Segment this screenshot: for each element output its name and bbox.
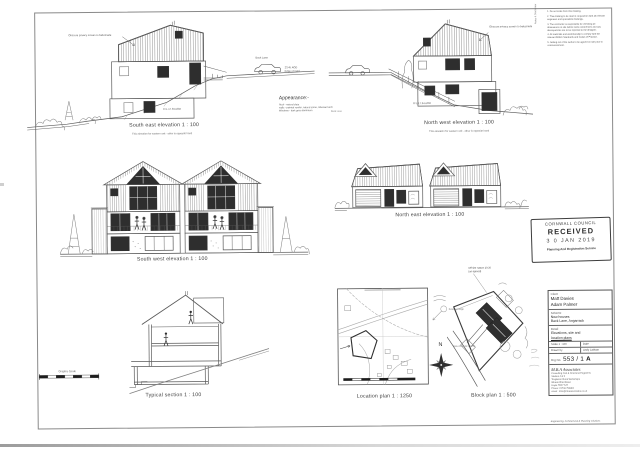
road-edge-note: Edge of road <box>285 69 300 73</box>
typical-section-label: Typical section 1 : 100 <box>145 392 201 398</box>
tree-icons-right <box>503 106 528 115</box>
council-received-stamp: CORNWALL COUNCIL RECEIVED 3 0 JAN 2019 P… <box>530 217 611 263</box>
ne-ground <box>335 207 529 211</box>
compass-north-label: N <box>439 342 443 348</box>
section-linework <box>129 291 225 388</box>
ne-house-left <box>351 163 422 208</box>
scheme-line: Back Lane, Angarrack <box>551 319 610 324</box>
client-cell: Client Matt Davies Adam Palmer <box>549 290 612 309</box>
grid-cross <box>338 288 429 385</box>
title-block-footer: Engineering, Architectural & Planning so… <box>551 419 615 423</box>
graphic-scale: Graphic Scale <box>37 366 121 391</box>
stamp-service: Planning And Registration Service <box>532 246 610 252</box>
south-east-elevation-sublabel: This elevation for western unit - other … <box>132 132 192 136</box>
sw-house-right <box>181 161 261 254</box>
north-west-elevation-label: North west elevation 1 : 100 <box>424 119 494 126</box>
ffl-note: FFL 17.94 AOD <box>163 107 181 111</box>
south-west-elevation-label: South west elevation 1 : 100 <box>137 256 208 263</box>
notes-side-label: Notes & Disclaimer <box>534 4 537 24</box>
ne-house-right <box>429 162 500 207</box>
north-east-elevation-drawing <box>332 148 533 222</box>
sheet-tilt-wrapper: Obscure privacy screen to balustrade FFL… <box>0 0 640 453</box>
drg-revision: A <box>586 355 591 362</box>
sw-house-left <box>103 161 183 254</box>
car-icon <box>255 64 281 74</box>
site-boundary <box>454 291 524 371</box>
block-plan-label: Block plan 1 : 500 <box>471 392 516 398</box>
location-plan-drawing <box>337 285 430 392</box>
appearance-note: Appearance:- Roof - natural slate walls … <box>279 95 365 113</box>
stamp-received: RECEIVED <box>532 225 610 236</box>
drawn-by: Andy Latham <box>580 348 612 353</box>
driveway <box>460 325 487 354</box>
pencil-marks <box>529 349 539 366</box>
site-arrow <box>340 345 350 348</box>
firm-cell: M.B.A Associates Consulting Civil & Stru… <box>549 365 612 395</box>
location-plan-label: Location plan 1 : 1250 <box>357 393 413 399</box>
appearance-title: Appearance:- <box>279 95 365 102</box>
typical-section-drawing <box>128 282 269 403</box>
sketch-scribble <box>433 295 447 320</box>
south-east-elevation-label: South east elevation 1 : 100 <box>129 122 199 129</box>
vegetation <box>499 283 528 359</box>
note-item: 5. Setting out of the works to be agreed… <box>547 42 606 48</box>
block-plan-drawing: Off site nature 20:20 (as agreed) Existi… <box>446 262 547 391</box>
scheme-cell: Scheme New houses Back Lane, Angarrack <box>549 309 612 326</box>
north-east-elevation-label: North east elevation 1 : 100 <box>395 212 464 219</box>
plan-scale-bar <box>343 378 415 381</box>
note-item: 1. Do not scale from this drawing. <box>547 10 606 13</box>
road-level-note: 23.45 AOD <box>285 65 298 69</box>
drg-label: Drg No. <box>551 358 561 362</box>
offsite-note-2: (as agreed) <box>468 270 481 273</box>
note-item: 2. This drawing to be read in conjunctio… <box>547 15 606 21</box>
drawing-number-cell: Drg No. 553 / 1 A <box>549 354 612 366</box>
sw-ground-walls <box>60 206 308 257</box>
note-item: 3. The contractor is responsible for che… <box>547 23 606 32</box>
privacy-screen-note: Obscure privacy screen to balustrade <box>489 24 533 28</box>
patio-outline <box>496 290 513 307</box>
north-west-elevation-sublabel: This elevation for western unit - other … <box>429 130 489 134</box>
firm-line: email : mba@mbaassociates.co.uk <box>551 390 610 393</box>
car-icon <box>346 66 370 76</box>
note-leader <box>473 274 486 293</box>
detail-line: location plans <box>551 335 610 340</box>
title-block: Client Matt Davies Adam Palmer Scheme Ne… <box>548 289 614 396</box>
privacy-screen-note: Obscure privacy screen to balustrade <box>68 33 112 37</box>
graphic-scale-label: Graphic Scale <box>58 369 76 373</box>
stamp-date: 3 0 JAN 2019 <box>532 236 610 244</box>
back-lane-note: Back Lane <box>256 55 269 59</box>
drawn-label: Drawn by <box>549 348 580 353</box>
figure-icon <box>189 311 194 324</box>
scan-edge-artifact <box>0 444 640 447</box>
scale-bar <box>39 373 99 380</box>
scan-mark <box>0 183 4 186</box>
detail-cell: Detail Elevations, site and location pla… <box>549 326 612 343</box>
firm-name: M.B.A Associates <box>551 366 610 372</box>
scanned-drawing-sheet: Obscure privacy screen to balustrade FFL… <box>0 0 640 453</box>
ffl-note: FFL 17.94 AOD <box>413 101 431 105</box>
notes-panel: 1. Do not scale from this drawing. 2. Th… <box>547 10 606 49</box>
drg-number: 553 / 1 <box>563 355 584 362</box>
scale-value: Scale 1 : 100 <box>549 342 580 347</box>
note-item: 4. All materials and workmanship to comp… <box>547 34 606 40</box>
figure-icon <box>164 332 169 345</box>
client-name: Adam Palmer <box>551 301 610 307</box>
date-label: Date <box>580 342 612 347</box>
section-ground-line <box>129 348 269 393</box>
site-boundary <box>351 331 377 359</box>
south-west-elevation-drawing <box>57 150 310 270</box>
